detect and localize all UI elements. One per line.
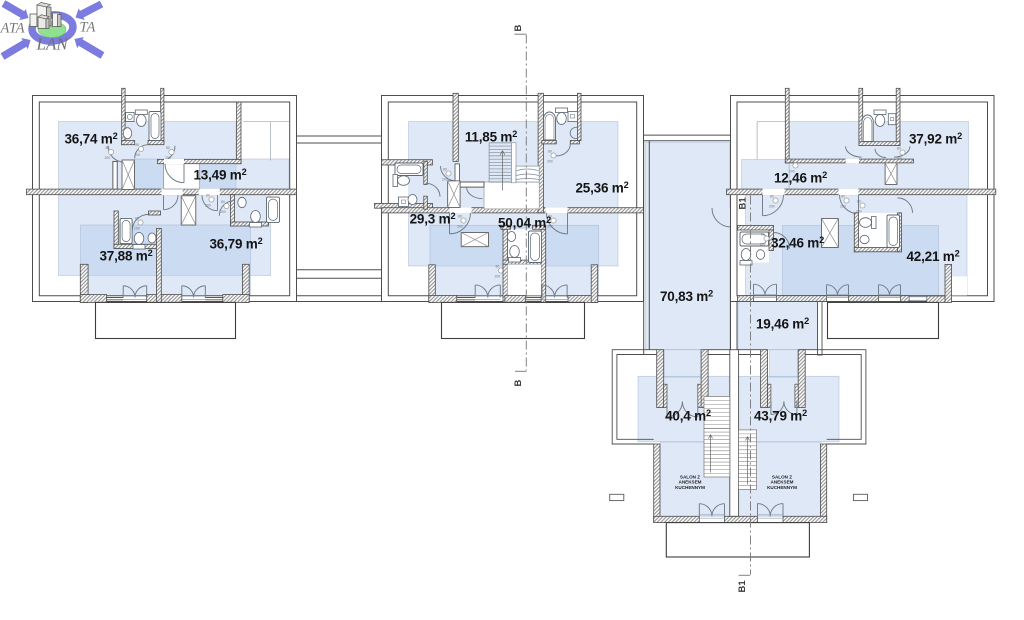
svg-text:80: 80 bbox=[458, 214, 462, 218]
svg-text:25,36 m2: 25,36 m2 bbox=[575, 180, 628, 195]
svg-text:TA: TA bbox=[80, 20, 96, 36]
svg-text:200: 200 bbox=[495, 274, 501, 278]
svg-text:200: 200 bbox=[135, 153, 141, 157]
svg-text:43,79 m2: 43,79 m2 bbox=[754, 408, 807, 423]
svg-text:80: 80 bbox=[548, 149, 552, 153]
svg-text:80: 80 bbox=[443, 167, 447, 171]
svg-text:200: 200 bbox=[547, 159, 553, 163]
svg-text:200: 200 bbox=[760, 242, 766, 246]
svg-text:80: 80 bbox=[206, 193, 210, 197]
svg-text:80: 80 bbox=[496, 264, 500, 268]
svg-text:200: 200 bbox=[769, 204, 775, 208]
svg-text:B: B bbox=[513, 380, 524, 387]
svg-text:36,79 m2: 36,79 m2 bbox=[209, 236, 262, 251]
svg-text:B1: B1 bbox=[737, 580, 748, 593]
svg-text:B1: B1 bbox=[738, 197, 749, 210]
svg-text:19,46 m2: 19,46 m2 bbox=[756, 316, 809, 331]
svg-text:37,92 m2: 37,92 m2 bbox=[909, 131, 962, 146]
svg-text:29,3 m2: 29,3 m2 bbox=[410, 211, 456, 226]
svg-text:40,4 m2: 40,4 m2 bbox=[665, 408, 711, 423]
svg-text:80: 80 bbox=[841, 194, 845, 198]
svg-text:70,83 m2: 70,83 m2 bbox=[660, 289, 713, 304]
svg-text:200: 200 bbox=[205, 203, 211, 207]
svg-text:200: 200 bbox=[856, 209, 862, 213]
svg-text:80: 80 bbox=[770, 194, 774, 198]
svg-text:80: 80 bbox=[857, 199, 861, 203]
svg-text:36,74 m2: 36,74 m2 bbox=[64, 131, 117, 146]
svg-text:80: 80 bbox=[136, 143, 140, 147]
svg-text:200: 200 bbox=[896, 156, 902, 160]
svg-text:200: 200 bbox=[457, 224, 463, 228]
svg-text:80: 80 bbox=[897, 146, 901, 150]
svg-text:200: 200 bbox=[105, 156, 111, 160]
svg-text:80: 80 bbox=[790, 159, 794, 163]
svg-text:80: 80 bbox=[761, 232, 765, 236]
svg-text:32,46 m2: 32,46 m2 bbox=[771, 235, 824, 250]
svg-text:200: 200 bbox=[442, 177, 448, 181]
svg-text:80: 80 bbox=[166, 146, 170, 150]
svg-text:200: 200 bbox=[220, 210, 226, 214]
svg-text:LAN: LAN bbox=[36, 35, 70, 54]
svg-text:200: 200 bbox=[840, 204, 846, 208]
svg-text:12,46 m2: 12,46 m2 bbox=[774, 170, 827, 185]
svg-text:50,04 m2: 50,04 m2 bbox=[498, 215, 551, 230]
svg-text:37,88 m2: 37,88 m2 bbox=[99, 248, 152, 263]
svg-text:80: 80 bbox=[221, 200, 225, 204]
svg-text:42,21 m2: 42,21 m2 bbox=[906, 249, 959, 264]
svg-text:B: B bbox=[513, 25, 524, 32]
svg-text:80: 80 bbox=[135, 216, 139, 220]
svg-text:ATA: ATA bbox=[0, 21, 25, 37]
svg-text:13,49 m2: 13,49 m2 bbox=[193, 167, 246, 182]
svg-text:11,85 m2: 11,85 m2 bbox=[465, 129, 517, 144]
svg-text:200: 200 bbox=[134, 226, 140, 230]
